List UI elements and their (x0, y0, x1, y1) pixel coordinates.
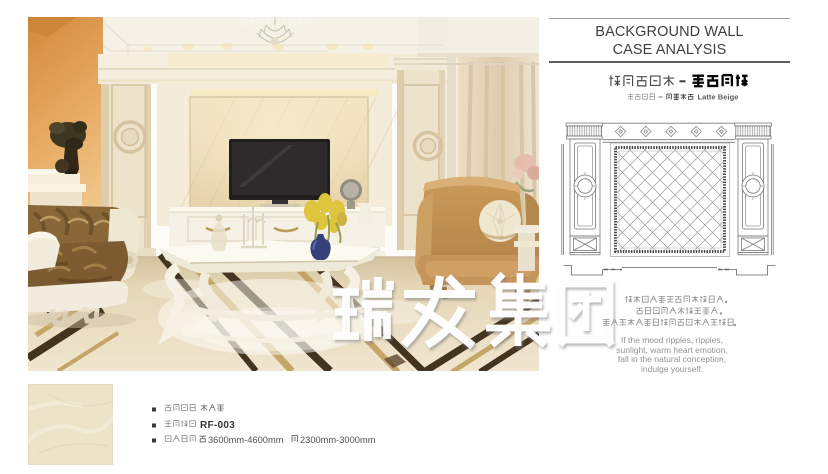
svg-text:Latte Beige: Latte Beige (698, 92, 739, 101)
svg-text:3600mm-4600mm: 3600mm-4600mm (208, 435, 284, 445)
svg-text:RF-003: RF-003 (200, 420, 235, 431)
svg-text:2300mm-3000mm: 2300mm-3000mm (300, 435, 376, 445)
